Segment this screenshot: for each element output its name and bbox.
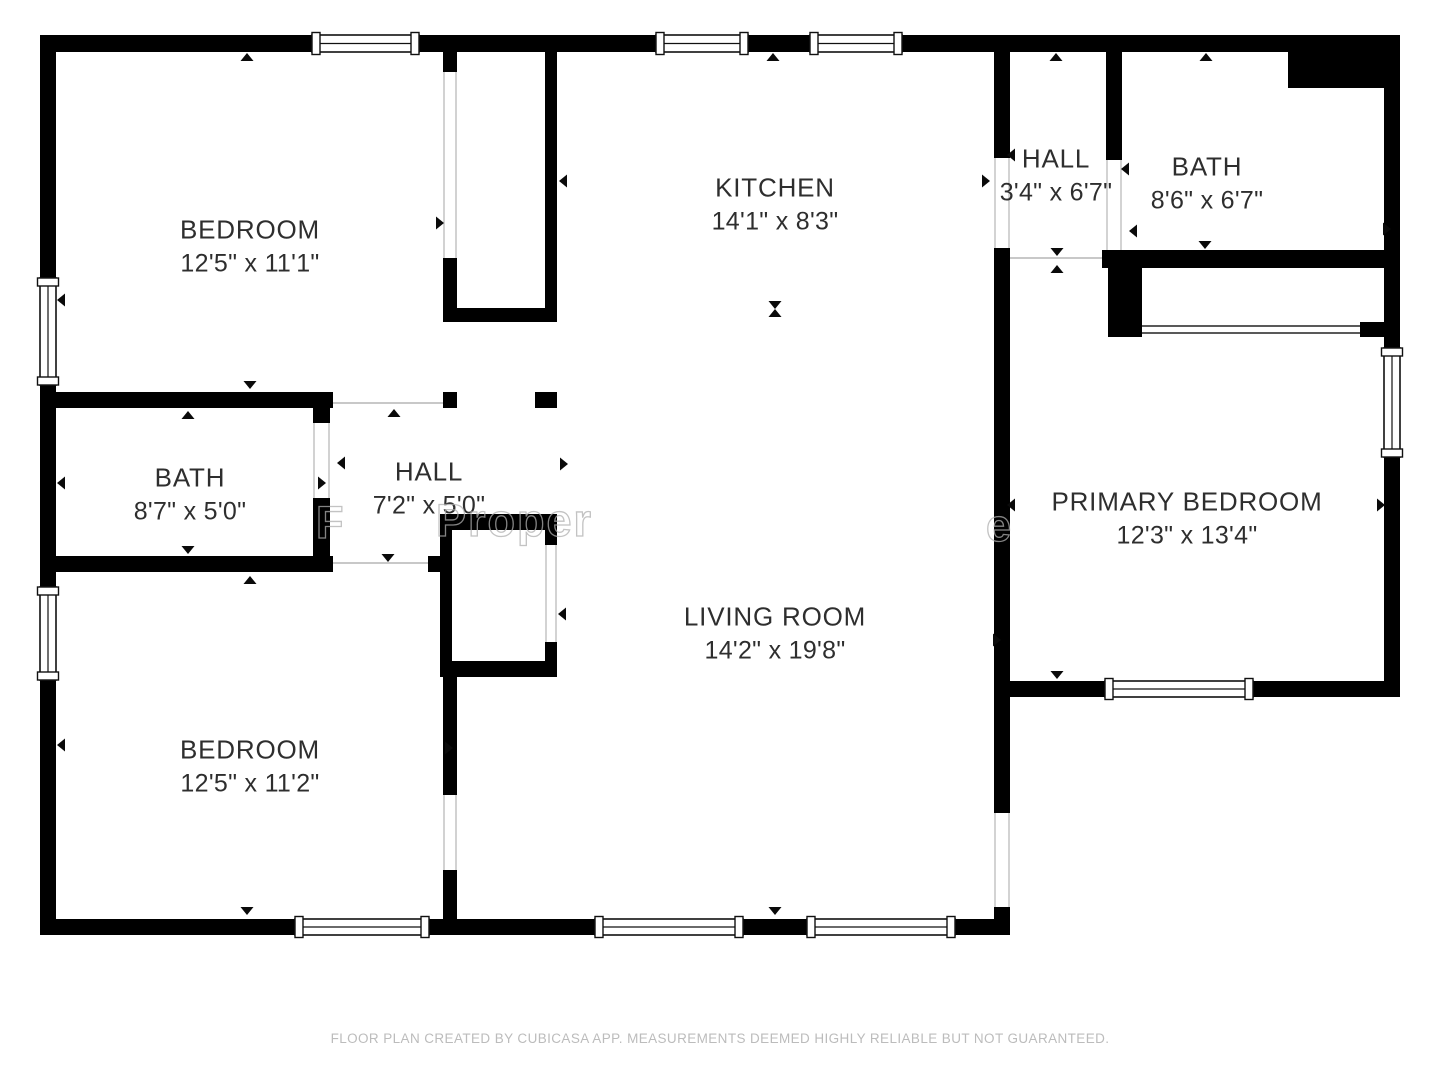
- wall: [443, 52, 457, 72]
- wall: [994, 52, 1010, 158]
- window-end-post: [656, 33, 664, 55]
- door-marker-up: [767, 53, 780, 61]
- window-end-post: [38, 377, 59, 385]
- door-marker-left: [1121, 163, 1129, 176]
- room-dims: 3'4" x 6'7": [1000, 179, 1113, 208]
- door-marker-down: [1199, 241, 1212, 249]
- room-label-hall-left: HALL 7'2" x 5'0": [373, 458, 486, 521]
- window: [312, 33, 419, 55]
- room-dims: 12'3" x 13'4": [1051, 522, 1322, 551]
- window-end-post: [38, 672, 59, 680]
- room-label-kitchen: KITCHEN 14'1" x 8'3": [712, 174, 839, 237]
- window-end-post: [312, 33, 320, 55]
- wall: [313, 408, 330, 423]
- room-label-living-room: LIVING ROOM 14'2" x 19'8": [684, 603, 866, 666]
- door-marker-left: [1129, 225, 1137, 238]
- room-dims: 14'1" x 8'3": [712, 208, 839, 237]
- window-end-post: [38, 587, 59, 595]
- window: [656, 33, 748, 55]
- window-end-post: [1105, 679, 1113, 700]
- window-end-post: [807, 917, 815, 938]
- door-marker-down: [769, 907, 782, 915]
- room-dims: 12'5" x 11'2": [180, 770, 320, 799]
- door-marker-left: [559, 175, 567, 188]
- door-marker-up: [1051, 265, 1064, 273]
- wall: [1108, 268, 1142, 337]
- window: [38, 278, 59, 385]
- door-marker-up: [241, 53, 254, 61]
- door-marker-right: [436, 217, 444, 230]
- window: [1382, 348, 1403, 457]
- window: [595, 917, 743, 938]
- window: [38, 587, 59, 680]
- door-marker-up: [1200, 53, 1213, 61]
- door-marker-down: [244, 381, 257, 389]
- door-marker-left: [337, 457, 345, 470]
- window: [807, 917, 955, 938]
- door-marker-up: [182, 411, 195, 419]
- wall: [443, 870, 457, 919]
- floor-plan: BEDROOM 12'5" x 11'1" KITCHEN 14'1" x 8'…: [0, 0, 1440, 1080]
- window-end-post: [894, 33, 902, 55]
- wall: [440, 661, 557, 677]
- window-end-post: [735, 917, 743, 938]
- wall: [443, 308, 550, 322]
- window-end-post: [595, 917, 603, 938]
- room-dims: 14'2" x 19'8": [684, 637, 866, 666]
- window: [810, 33, 902, 55]
- wall: [440, 514, 452, 677]
- door-marker-up: [769, 309, 782, 317]
- room-name: HALL: [373, 458, 486, 488]
- wall: [1360, 322, 1384, 337]
- door-marker-down: [382, 554, 395, 562]
- door-marker-up: [244, 576, 257, 584]
- room-label-bath-left: BATH 8'7" x 5'0": [134, 464, 247, 527]
- room-label-bedroom-top-left: BEDROOM 12'5" x 11'1": [180, 216, 320, 279]
- window: [1105, 679, 1253, 700]
- room-dims: 8'7" x 5'0": [134, 498, 247, 527]
- wall: [1102, 250, 1400, 268]
- wall: [545, 642, 557, 677]
- room-name: BEDROOM: [180, 216, 320, 246]
- room-name: LIVING ROOM: [684, 603, 866, 633]
- wall: [428, 556, 440, 572]
- room-name: KITCHEN: [712, 174, 839, 204]
- door-marker-left: [558, 608, 566, 621]
- window-end-post: [1382, 449, 1403, 457]
- room-name: PRIMARY BEDROOM: [1051, 488, 1322, 518]
- footer-disclaimer: FLOOR PLAN CREATED BY CUBICASA APP. MEAS…: [0, 1031, 1440, 1046]
- door-marker-down: [241, 907, 254, 915]
- room-name: BATH: [134, 464, 247, 494]
- window-end-post: [421, 917, 429, 938]
- wall: [994, 248, 1010, 813]
- wall: [40, 35, 56, 935]
- door-marker-left: [57, 294, 65, 307]
- wall: [313, 498, 330, 572]
- room-label-hall-top-right: HALL 3'4" x 6'7": [1000, 145, 1113, 208]
- window-end-post: [1245, 679, 1253, 700]
- door-marker-right: [560, 458, 568, 471]
- wall: [1288, 35, 1400, 88]
- room-name: BEDROOM: [180, 736, 320, 766]
- door-marker-right: [1377, 499, 1385, 512]
- wall: [443, 392, 457, 408]
- door-marker-down: [769, 301, 782, 309]
- door-marker-left: [57, 739, 65, 752]
- wall: [535, 392, 557, 408]
- door-marker-down: [1051, 248, 1064, 256]
- door-marker-right: [982, 175, 990, 188]
- wall: [443, 677, 457, 795]
- window-end-post: [38, 278, 59, 286]
- door-marker-down: [182, 546, 195, 554]
- window-end-post: [947, 917, 955, 938]
- window-end-post: [1382, 348, 1403, 356]
- window-end-post: [295, 917, 303, 938]
- room-name: HALL: [1000, 145, 1113, 175]
- closet-sliding-door: [1142, 326, 1360, 333]
- room-dims: 7'2" x 5'0": [373, 492, 486, 521]
- room-label-bath-top-right: BATH 8'6" x 6'7": [1151, 153, 1264, 216]
- wall: [545, 52, 557, 322]
- wall: [994, 907, 1010, 919]
- door-marker-left: [57, 477, 65, 490]
- window-end-post: [740, 33, 748, 55]
- wall: [56, 556, 333, 572]
- room-label-bedroom-bottom-left: BEDROOM 12'5" x 11'2": [180, 736, 320, 799]
- wall: [545, 514, 557, 545]
- door-marker-right: [318, 477, 326, 490]
- room-dims: 12'5" x 11'1": [180, 250, 320, 279]
- room-label-primary-bedroom: PRIMARY BEDROOM 12'3" x 13'4": [1051, 488, 1322, 551]
- door-marker-up: [388, 409, 401, 417]
- door-marker-down: [1051, 671, 1064, 679]
- window: [295, 917, 429, 938]
- room-dims: 8'6" x 6'7": [1151, 187, 1264, 216]
- wall: [56, 392, 333, 408]
- door-marker-up: [1050, 53, 1063, 61]
- window-end-post: [810, 33, 818, 55]
- room-name: BATH: [1151, 153, 1264, 183]
- window-end-post: [411, 33, 419, 55]
